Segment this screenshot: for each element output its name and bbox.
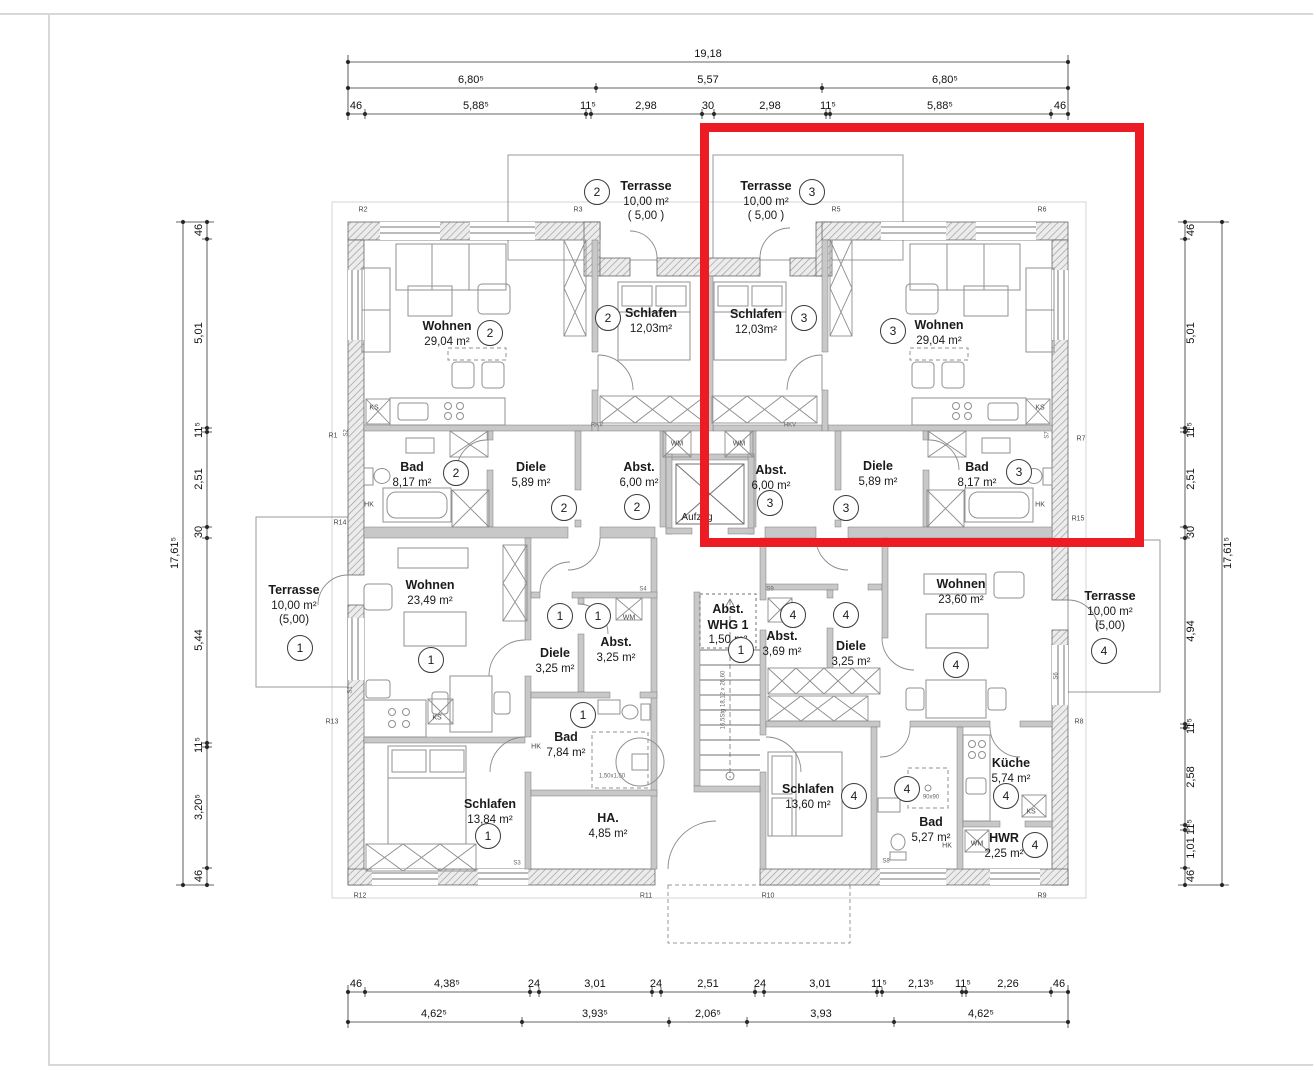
room-label-bad-4: Bad5,27 m² bbox=[912, 815, 951, 845]
dimension-label: 46 bbox=[1185, 224, 1199, 236]
dimension-label: 2,13⁵ bbox=[908, 978, 934, 992]
unit-number-circle: 4 bbox=[841, 783, 867, 809]
dimension-label: 5,88⁵ bbox=[463, 100, 489, 114]
annotation-label: S9 bbox=[766, 586, 773, 594]
unit-number-circle: 2 bbox=[624, 494, 650, 520]
annotation-label: R1 bbox=[329, 433, 338, 442]
room-label-wohnen-1: Wohnen23,49 m² bbox=[405, 578, 454, 608]
dimension-label: 6,80⁵ bbox=[458, 74, 484, 88]
dimension-label: 24 bbox=[650, 978, 662, 992]
unit-number-circle: 2 bbox=[584, 179, 610, 205]
unit-number-circle: 2 bbox=[477, 320, 503, 346]
unit-number-circle: 1 bbox=[547, 603, 573, 629]
dimension-label: 2,51 bbox=[193, 468, 207, 489]
dimension-label: 30 bbox=[193, 526, 207, 538]
dimension-label: 4,38⁵ bbox=[434, 978, 460, 992]
dimension-label: 46 bbox=[193, 870, 207, 882]
room-label-abst-1: Abst.3,25 m² bbox=[597, 635, 636, 665]
floor-plan-page: Terrasse10,00 m²( 5,00 )Terrasse10,00 m²… bbox=[0, 0, 1313, 1080]
annotation-label: R8 bbox=[1075, 719, 1084, 728]
annotation-label: R2 bbox=[359, 207, 368, 216]
dimension-label: 3,01 bbox=[809, 978, 830, 992]
room-label-hwr-4: HWR2,25 m² bbox=[985, 831, 1024, 861]
annotation-label: S8 bbox=[882, 858, 889, 866]
dimension-label: 11⁵ bbox=[1185, 422, 1199, 438]
dimension-label: 46 bbox=[350, 100, 362, 114]
dimension-label: 24 bbox=[754, 978, 766, 992]
annotation-label: KS bbox=[432, 715, 441, 724]
annotation-label: WM bbox=[623, 615, 635, 624]
dimension-label: 46 bbox=[350, 978, 362, 992]
annotation-label: 90x90 bbox=[923, 794, 939, 802]
room-label-diele-2: Diele5,89 m² bbox=[512, 460, 551, 490]
dimension-label: 24 bbox=[528, 978, 540, 992]
room-label-wohnen-4: Wohnen23,60 m² bbox=[936, 577, 985, 607]
dimension-label: 4,62⁵ bbox=[968, 1008, 994, 1022]
dimension-label: 19,18 bbox=[694, 48, 722, 62]
annotation-label: WM bbox=[971, 841, 983, 850]
dimension-label: 11⁵ bbox=[1185, 819, 1199, 835]
room-label-terrasse-2: Terrasse10,00 m²( 5,00 ) bbox=[620, 179, 671, 223]
dimension-label: 5,57 bbox=[697, 74, 718, 88]
dimension-label: 17,61⁵ bbox=[169, 537, 183, 569]
dimension-label: 11⁵ bbox=[193, 422, 207, 438]
annotation-label: R14 bbox=[334, 520, 347, 529]
dimension-label: 2,98 bbox=[759, 100, 780, 114]
dimension-label: 6,80⁵ bbox=[932, 74, 958, 88]
annotation-label: S3 bbox=[513, 860, 520, 868]
unit-number-circle: 1 bbox=[728, 637, 754, 663]
annotation-label: R13 bbox=[326, 719, 339, 728]
annotation-label: R9 bbox=[1038, 893, 1047, 902]
annotation-label: HK bbox=[364, 502, 374, 511]
annotation-label: 1,50x1,50 bbox=[599, 773, 625, 781]
room-label-terrasse-4: Terrasse10,00 m²(5,00) bbox=[1084, 589, 1135, 633]
dimension-label: 3,20⁵ bbox=[193, 794, 207, 820]
dimension-label: 46 bbox=[193, 224, 207, 236]
room-label-terrasse-1: Terrasse10,00 m²(5,00) bbox=[268, 583, 319, 627]
dimension-label: 30 bbox=[702, 100, 714, 114]
annotation-label: RKV bbox=[591, 422, 603, 430]
dimension-label: 30 bbox=[1185, 526, 1199, 538]
highlight-rectangle bbox=[700, 123, 1144, 547]
unit-number-circle: 4 bbox=[780, 602, 806, 628]
unit-number-circle: 4 bbox=[993, 783, 1019, 809]
dimension-label: 5,88⁵ bbox=[927, 100, 953, 114]
dimension-label: 2,98 bbox=[635, 100, 656, 114]
unit-number-circle: 1 bbox=[287, 635, 313, 661]
room-label-schlafen-4: Schlafen13,60 m² bbox=[782, 782, 834, 812]
room-label-diele-4: Diele3,25 m² bbox=[832, 639, 871, 669]
dimension-label: 11⁵ bbox=[955, 978, 971, 992]
annotation-label: R3 bbox=[574, 207, 583, 216]
annotation-label: HK bbox=[531, 744, 541, 753]
annotation-label: S6 bbox=[1053, 672, 1061, 679]
annotation-label: R10 bbox=[762, 893, 775, 902]
unit-number-circle: 4 bbox=[1022, 832, 1048, 858]
dimension-label: 3,93⁵ bbox=[582, 1008, 608, 1022]
dimension-label: 46 bbox=[1053, 978, 1065, 992]
dimension-label: 2,51 bbox=[1185, 468, 1199, 489]
dimension-label: 4,62⁵ bbox=[421, 1008, 447, 1022]
annotation-label: S4 bbox=[639, 586, 646, 594]
dimension-label: 2,51 bbox=[697, 978, 718, 992]
dimension-label: 3,93 bbox=[810, 1008, 831, 1022]
unit-number-circle: 1 bbox=[570, 702, 596, 728]
dimension-label: 1,01 bbox=[1185, 837, 1199, 858]
annotation-label: R12 bbox=[354, 893, 367, 902]
unit-number-circle: 4 bbox=[1091, 638, 1117, 664]
dimension-label: 11⁵ bbox=[1185, 718, 1199, 734]
dimension-label: 17,61⁵ bbox=[1222, 537, 1236, 569]
dimension-label: 5,44 bbox=[193, 629, 207, 650]
unit-number-circle: 1 bbox=[475, 823, 501, 849]
dimension-label: 2,26 bbox=[997, 978, 1018, 992]
dimension-label: 11⁵ bbox=[871, 978, 887, 992]
room-label-kueche-4: Küche5,74 m² bbox=[992, 756, 1031, 786]
room-label-wohnen-2: Wohnen29,04 m² bbox=[422, 319, 471, 349]
dimension-label: 46 bbox=[1185, 870, 1199, 882]
room-label-schlafen-2: Schlafen12,03m² bbox=[625, 306, 677, 336]
annotation-label: 16,5Stg 18,12 x 26,60 bbox=[720, 671, 728, 730]
unit-number-circle: 1 bbox=[585, 603, 611, 629]
unit-number-circle: 2 bbox=[551, 495, 577, 521]
unit-number-circle: 1 bbox=[418, 647, 444, 673]
annotation-label: R11 bbox=[640, 893, 652, 902]
dimension-label: 5,01 bbox=[1185, 322, 1199, 343]
annotation-label: S1 bbox=[347, 686, 355, 693]
dimension-label: 2,58 bbox=[1185, 766, 1199, 787]
unit-number-circle: 2 bbox=[443, 460, 469, 486]
annotation-label: S2 bbox=[343, 429, 351, 436]
annotation-label: KS bbox=[369, 405, 378, 414]
room-label-abst-4: Abst.3,69 m² bbox=[763, 629, 802, 659]
dimension-label: 11⁵ bbox=[193, 737, 207, 753]
dimension-label: 5,01 bbox=[193, 322, 207, 343]
annotation-label: KS bbox=[1026, 809, 1035, 818]
unit-number-circle: 2 bbox=[595, 305, 621, 331]
room-label-bad-1: Bad7,84 m² bbox=[547, 730, 586, 760]
dimension-label: 3,01 bbox=[584, 978, 605, 992]
unit-number-circle: 4 bbox=[894, 776, 920, 802]
unit-number-circle: 4 bbox=[943, 652, 969, 678]
room-label-ha-1: HA.4,85 m² bbox=[589, 811, 628, 841]
dimension-label: 4,94 bbox=[1185, 620, 1199, 641]
annotation-label: WM bbox=[671, 441, 683, 450]
dimension-label: 2,06⁵ bbox=[695, 1008, 721, 1022]
room-label-abst-2: Abst.6,00 m² bbox=[620, 460, 659, 490]
dimension-label: 11⁵ bbox=[820, 100, 836, 114]
annotation-label: HK bbox=[942, 843, 952, 852]
room-label-bad-2: Bad8,17 m² bbox=[393, 460, 432, 490]
dimension-label: 46 bbox=[1054, 100, 1066, 114]
dimension-label: 11⁵ bbox=[580, 100, 596, 114]
unit-number-circle: 4 bbox=[833, 602, 859, 628]
room-label-diele-1: Diele3,25 m² bbox=[536, 646, 575, 676]
